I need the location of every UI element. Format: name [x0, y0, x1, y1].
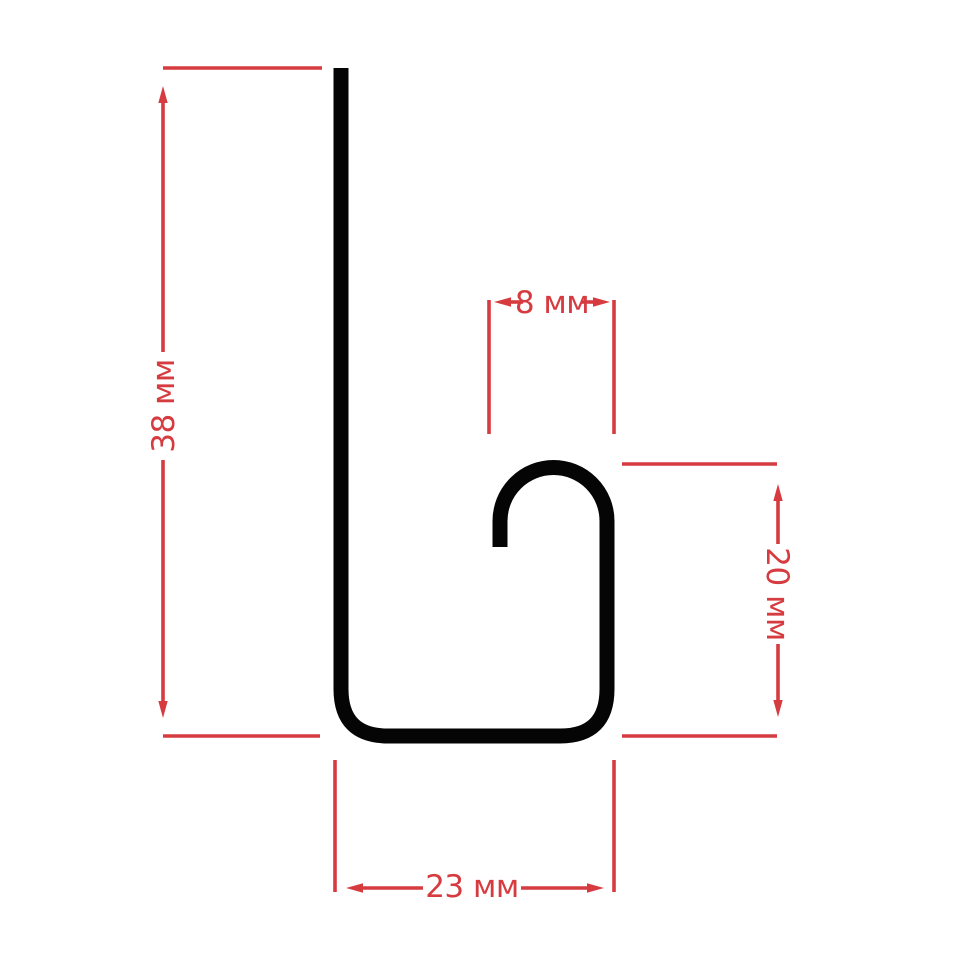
dimension-hook-height: 20 мм [622, 464, 795, 736]
diagram-canvas: 38 мм 8 мм 20 мм [0, 0, 960, 960]
dimension-label-23mm: 23 мм [425, 869, 519, 905]
dimension-overall-width: 23 мм [335, 760, 614, 905]
dimension-hook-width: 8 мм [489, 285, 614, 434]
dimension-label-8mm: 8 мм [515, 285, 589, 321]
arrowhead-right-icon [587, 883, 604, 892]
profile-dimension-drawing: 38 мм 8 мм 20 мм [0, 0, 960, 960]
arrowhead-left-icon [494, 297, 511, 306]
arrowhead-down-icon [158, 701, 167, 718]
dimension-label-38mm: 38 мм [146, 359, 182, 453]
dimension-overall-height: 38 мм [146, 68, 322, 736]
arrowhead-down-icon [773, 700, 782, 717]
arrowhead-up-icon [773, 484, 782, 501]
dimension-label-20mm: 20 мм [759, 547, 795, 641]
arrowhead-left-icon [346, 883, 363, 892]
j-profile-outline [341, 68, 607, 736]
arrowhead-right-icon [593, 297, 610, 306]
arrowhead-up-icon [158, 86, 167, 103]
